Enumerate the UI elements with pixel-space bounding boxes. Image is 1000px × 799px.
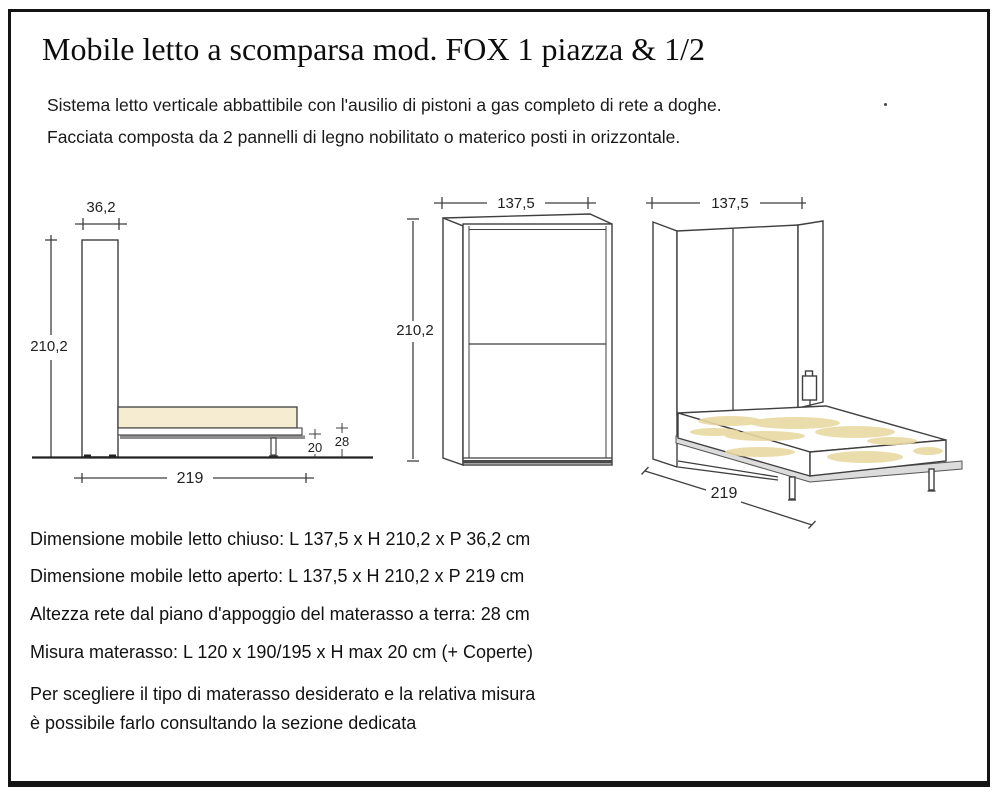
width-label: 137,5 <box>497 195 535 212</box>
diagram-open-view: 137,5 <box>630 180 1000 530</box>
spec-mattress-size: Misura materasso: L 120 x 190/195 x H ma… <box>30 642 533 663</box>
mattress-texture-patch <box>750 417 840 429</box>
mattress-texture-patch <box>815 426 895 438</box>
cabinet-front <box>443 214 612 465</box>
cabinet-base-strip <box>463 460 612 464</box>
open-bed-profile <box>118 407 305 456</box>
mattress-thickness-label: 20 <box>308 440 322 455</box>
diagram-side-view: 36,2 210,2 20 2 <box>20 185 380 495</box>
bed-board <box>118 428 302 435</box>
cabinet-left-side <box>443 218 463 465</box>
height-label: 210,2 <box>30 338 68 355</box>
dim-height: 210,2 <box>30 235 68 457</box>
description-line-1: Sistema letto verticale abbattibile con … <box>47 95 722 116</box>
diagram-front-view: 137,5 210,2 <box>390 185 640 485</box>
spec-note-line-2: è possibile farlo consultando la sezione… <box>30 713 416 734</box>
gas-piston <box>803 376 817 400</box>
slat-frame-bar <box>120 436 305 440</box>
spec-sheet: Mobile letto a scomparsa mod. FOX 1 piaz… <box>0 0 1000 799</box>
width-label: 137,5 <box>711 195 749 212</box>
spec-open-dimensions: Dimensione mobile letto aperto: L 137,5 … <box>30 566 524 587</box>
cabinet-back-wall <box>677 225 798 415</box>
mattress-texture-patch <box>725 447 795 457</box>
dim-depth-open: 219 <box>74 470 314 487</box>
dim-height: 210,2 <box>396 219 434 461</box>
frame-height-label: 28 <box>335 434 349 449</box>
height-label: 210,2 <box>396 322 434 339</box>
dim-width: 137,5 <box>434 195 596 212</box>
stray-dot <box>884 103 887 106</box>
mattress-side <box>118 407 297 428</box>
dim-frame-height: 28 <box>335 423 349 458</box>
spec-closed-dimensions: Dimensione mobile letto chiuso: L 137,5 … <box>30 529 530 550</box>
mattress-texture-patch <box>690 428 740 436</box>
spec-slat-height: Altezza rete dal piano d'appoggio del ma… <box>30 604 530 625</box>
dim-mattress-thickness: 20 <box>308 429 322 458</box>
depth-closed-label: 36,2 <box>86 199 115 216</box>
spec-note-line-1: Per scegliere il tipo di materasso desid… <box>30 684 535 705</box>
mattress-texture-patch <box>913 447 943 455</box>
mattress-texture-patch <box>867 437 917 445</box>
cabinet-side-profile <box>82 240 118 458</box>
bed-leg <box>929 469 934 490</box>
depth-open-label: 219 <box>177 470 204 487</box>
bed-leg <box>271 438 276 455</box>
bed-leg <box>790 477 796 499</box>
description-line-2: Facciata composta da 2 pannelli di legno… <box>47 127 680 148</box>
depth-open-label: 219 <box>711 485 738 502</box>
mattress-texture-patch <box>827 451 903 463</box>
cabinet-left-side <box>653 222 677 467</box>
page-title: Mobile letto a scomparsa mod. FOX 1 piaz… <box>42 31 705 68</box>
dim-width: 137,5 <box>646 195 806 212</box>
dim-depth-closed: 36,2 <box>75 199 127 230</box>
